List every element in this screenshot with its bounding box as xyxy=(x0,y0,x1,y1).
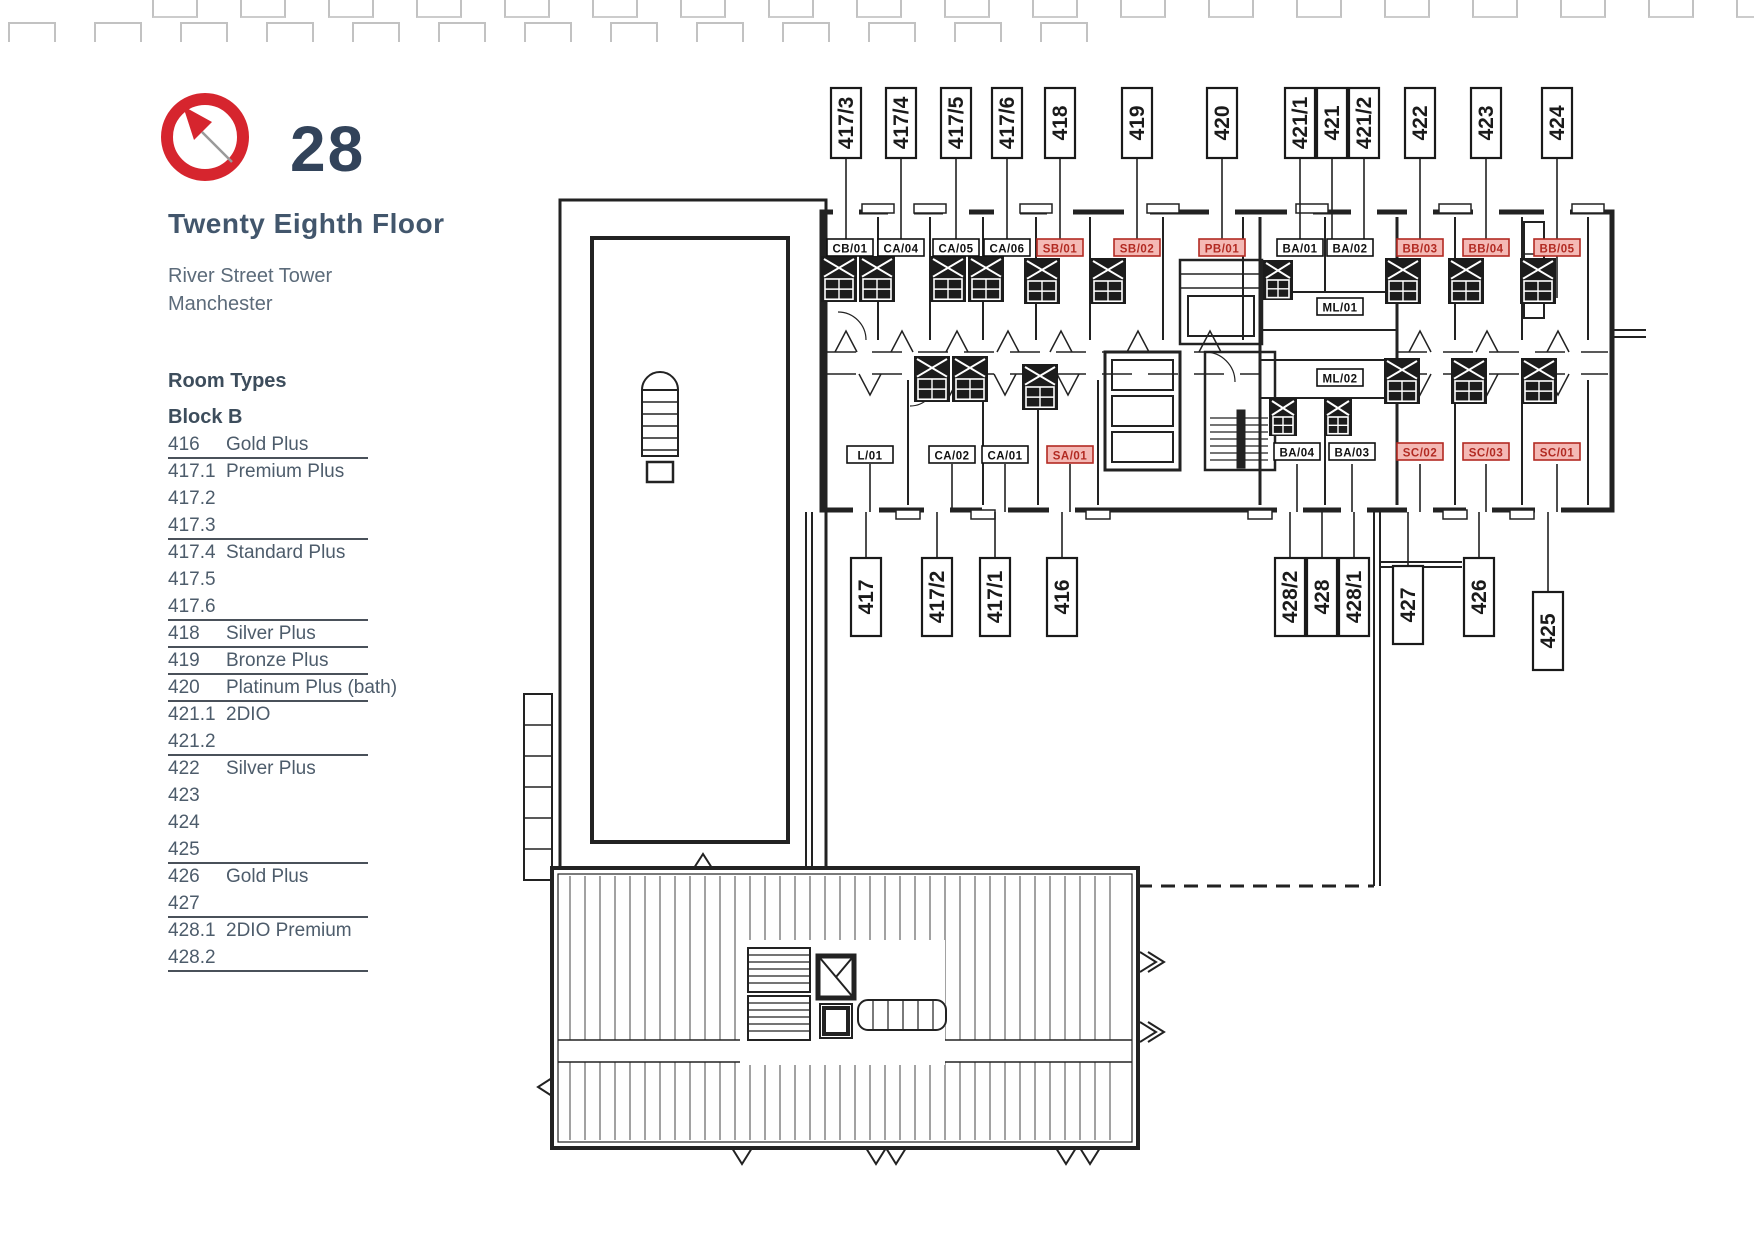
plan-walls xyxy=(524,200,1646,1164)
svg-text:417/5: 417/5 xyxy=(945,96,968,149)
svg-text:ML/02: ML/02 xyxy=(1322,374,1357,386)
callout-label: 417/6 xyxy=(992,88,1022,158)
svg-text:CA/06: CA/06 xyxy=(989,244,1024,256)
svg-text:BA/04: BA/04 xyxy=(1279,448,1314,460)
svg-text:417/2: 417/2 xyxy=(926,571,949,624)
callout-label: 417/2 xyxy=(922,558,952,636)
unit-code-label: PB/01 xyxy=(1199,239,1245,256)
svg-text:SB/02: SB/02 xyxy=(1120,244,1154,256)
svg-text:417/3: 417/3 xyxy=(835,97,858,150)
svg-text:SB/01: SB/01 xyxy=(1043,244,1078,256)
svg-text:PB/01: PB/01 xyxy=(1205,244,1240,256)
callout-label: 422 xyxy=(1405,88,1435,158)
unit-code-label: SC/01 xyxy=(1534,443,1580,460)
callout-label: 417 xyxy=(851,558,881,636)
unit-code-label: CB/01 xyxy=(827,239,873,256)
lift-stair-cluster xyxy=(1105,352,1275,470)
bottom-callout-labels: 417417/2417/1416428/2428428/1427426425 xyxy=(851,558,1563,670)
unit-code-label: ML/01 xyxy=(1317,298,1363,315)
unit-code-label: BB/05 xyxy=(1534,239,1580,256)
unit-code-label: ML/02 xyxy=(1317,369,1363,386)
callout-label: 427 xyxy=(1393,566,1423,644)
svg-text:422: 422 xyxy=(1409,105,1432,140)
svg-text:421/1: 421/1 xyxy=(1289,96,1312,149)
bed-symbol xyxy=(1520,258,1556,304)
callout-label: 417/5 xyxy=(941,88,971,158)
svg-text:424: 424 xyxy=(1546,105,1569,140)
svg-text:CA/05: CA/05 xyxy=(938,244,973,256)
svg-text:419: 419 xyxy=(1126,105,1149,140)
svg-text:428/1: 428/1 xyxy=(1343,570,1366,623)
bed-symbol xyxy=(1324,398,1352,436)
svg-text:417/4: 417/4 xyxy=(890,96,913,149)
unit-code-label: SC/02 xyxy=(1397,443,1443,460)
bed-symbol xyxy=(1024,258,1060,304)
callout-label: 416 xyxy=(1047,558,1077,636)
callout-label: 418 xyxy=(1045,88,1075,158)
unit-code-label: BA/03 xyxy=(1329,443,1375,460)
unit-code-label: CA/05 xyxy=(933,239,979,256)
floor-plan: 417/3417/4417/5417/6418419420421/1421421… xyxy=(0,0,1754,1240)
svg-text:426: 426 xyxy=(1468,579,1491,614)
svg-text:CA/02: CA/02 xyxy=(934,451,969,463)
svg-text:BB/04: BB/04 xyxy=(1468,244,1503,256)
callout-label: 424 xyxy=(1542,88,1572,158)
callout-label: 425 xyxy=(1533,592,1563,670)
bed-symbol xyxy=(1384,358,1420,404)
unit-code-label: CA/04 xyxy=(878,239,924,256)
unit-code-label: BA/01 xyxy=(1277,239,1323,256)
svg-text:BB/03: BB/03 xyxy=(1402,244,1437,256)
bed-symbol xyxy=(1385,258,1421,304)
unit-code-label: BB/03 xyxy=(1397,239,1443,256)
bed-symbol xyxy=(1448,258,1484,304)
svg-text:421: 421 xyxy=(1321,105,1344,140)
svg-text:428/2: 428/2 xyxy=(1279,571,1302,624)
callout-label: 426 xyxy=(1464,558,1494,636)
unit-code-label: BA/02 xyxy=(1327,239,1373,256)
callout-label: 419 xyxy=(1122,88,1152,158)
unit-code-label: CA/01 xyxy=(982,446,1028,463)
bed-symbol xyxy=(1521,358,1557,404)
svg-text:428: 428 xyxy=(1311,579,1334,614)
bed-symbol xyxy=(952,356,988,402)
callout-label: 423 xyxy=(1471,88,1501,158)
callout-label: 417/3 xyxy=(831,88,861,158)
unit-code-label: BA/04 xyxy=(1274,443,1320,460)
svg-text:423: 423 xyxy=(1475,105,1498,140)
bath-equipment xyxy=(1180,260,1262,344)
bed-symbol xyxy=(1022,364,1058,410)
callout-label: 421/1 xyxy=(1285,88,1315,158)
svg-text:427: 427 xyxy=(1397,587,1420,622)
unit-code-label: CA/02 xyxy=(929,446,975,463)
unit-code-label: BB/04 xyxy=(1463,239,1509,256)
unit-code-label: SB/02 xyxy=(1114,239,1160,256)
bed-symbol xyxy=(1269,398,1297,436)
svg-text:BA/02: BA/02 xyxy=(1332,244,1367,256)
unit-code-label: SA/01 xyxy=(1047,446,1093,463)
svg-text:ML/01: ML/01 xyxy=(1322,303,1357,315)
svg-text:BB/05: BB/05 xyxy=(1539,244,1574,256)
unit-code-label: L/01 xyxy=(847,446,893,463)
svg-text:SC/02: SC/02 xyxy=(1403,448,1437,460)
callout-label: 428/2 xyxy=(1275,558,1305,636)
bed-symbol xyxy=(914,356,950,402)
svg-text:SC/03: SC/03 xyxy=(1469,448,1503,460)
svg-text:418: 418 xyxy=(1049,105,1072,140)
svg-text:L/01: L/01 xyxy=(857,451,882,463)
callout-label: 417/1 xyxy=(980,558,1010,636)
callout-label: 421/2 xyxy=(1349,88,1379,158)
scanned-floorplan-page: 28 Twenty Eighth Floor River Street Towe… xyxy=(0,0,1754,1240)
svg-text:425: 425 xyxy=(1537,613,1560,648)
bed-symbol xyxy=(1090,258,1126,304)
svg-text:421/2: 421/2 xyxy=(1353,97,1376,150)
bed-symbol xyxy=(859,256,895,302)
roof-deck xyxy=(552,868,1138,1148)
bed-symbol xyxy=(930,256,966,302)
svg-text:420: 420 xyxy=(1211,105,1234,140)
svg-text:417: 417 xyxy=(855,579,878,614)
svg-text:CA/04: CA/04 xyxy=(883,244,918,256)
svg-text:417/1: 417/1 xyxy=(984,570,1007,623)
svg-text:416: 416 xyxy=(1051,579,1074,614)
svg-text:SA/01: SA/01 xyxy=(1053,451,1088,463)
core-block xyxy=(524,200,826,880)
bed-symbols xyxy=(821,256,1557,436)
svg-text:SC/01: SC/01 xyxy=(1540,448,1575,460)
bed-symbol xyxy=(1263,260,1293,300)
bed-symbol xyxy=(821,256,857,302)
callout-label: 420 xyxy=(1207,88,1237,158)
unit-code-label: SB/01 xyxy=(1037,239,1083,256)
svg-text:BA/03: BA/03 xyxy=(1334,448,1369,460)
svg-text:BA/01: BA/01 xyxy=(1282,244,1317,256)
callout-label: 421 xyxy=(1317,88,1347,158)
bed-symbol xyxy=(1451,358,1487,404)
svg-text:CB/01: CB/01 xyxy=(832,244,867,256)
top-callout-labels: 417/3417/4417/5417/6418419420421/1421421… xyxy=(831,88,1572,158)
unit-code-label: CA/06 xyxy=(984,239,1030,256)
bed-symbol xyxy=(968,256,1004,302)
svg-text:CA/01: CA/01 xyxy=(987,451,1022,463)
callout-label: 417/4 xyxy=(886,88,916,158)
svg-text:417/6: 417/6 xyxy=(996,97,1019,150)
callout-label: 428 xyxy=(1307,558,1337,636)
callout-label: 428/1 xyxy=(1339,558,1369,636)
unit-code-label: SC/03 xyxy=(1463,443,1509,460)
